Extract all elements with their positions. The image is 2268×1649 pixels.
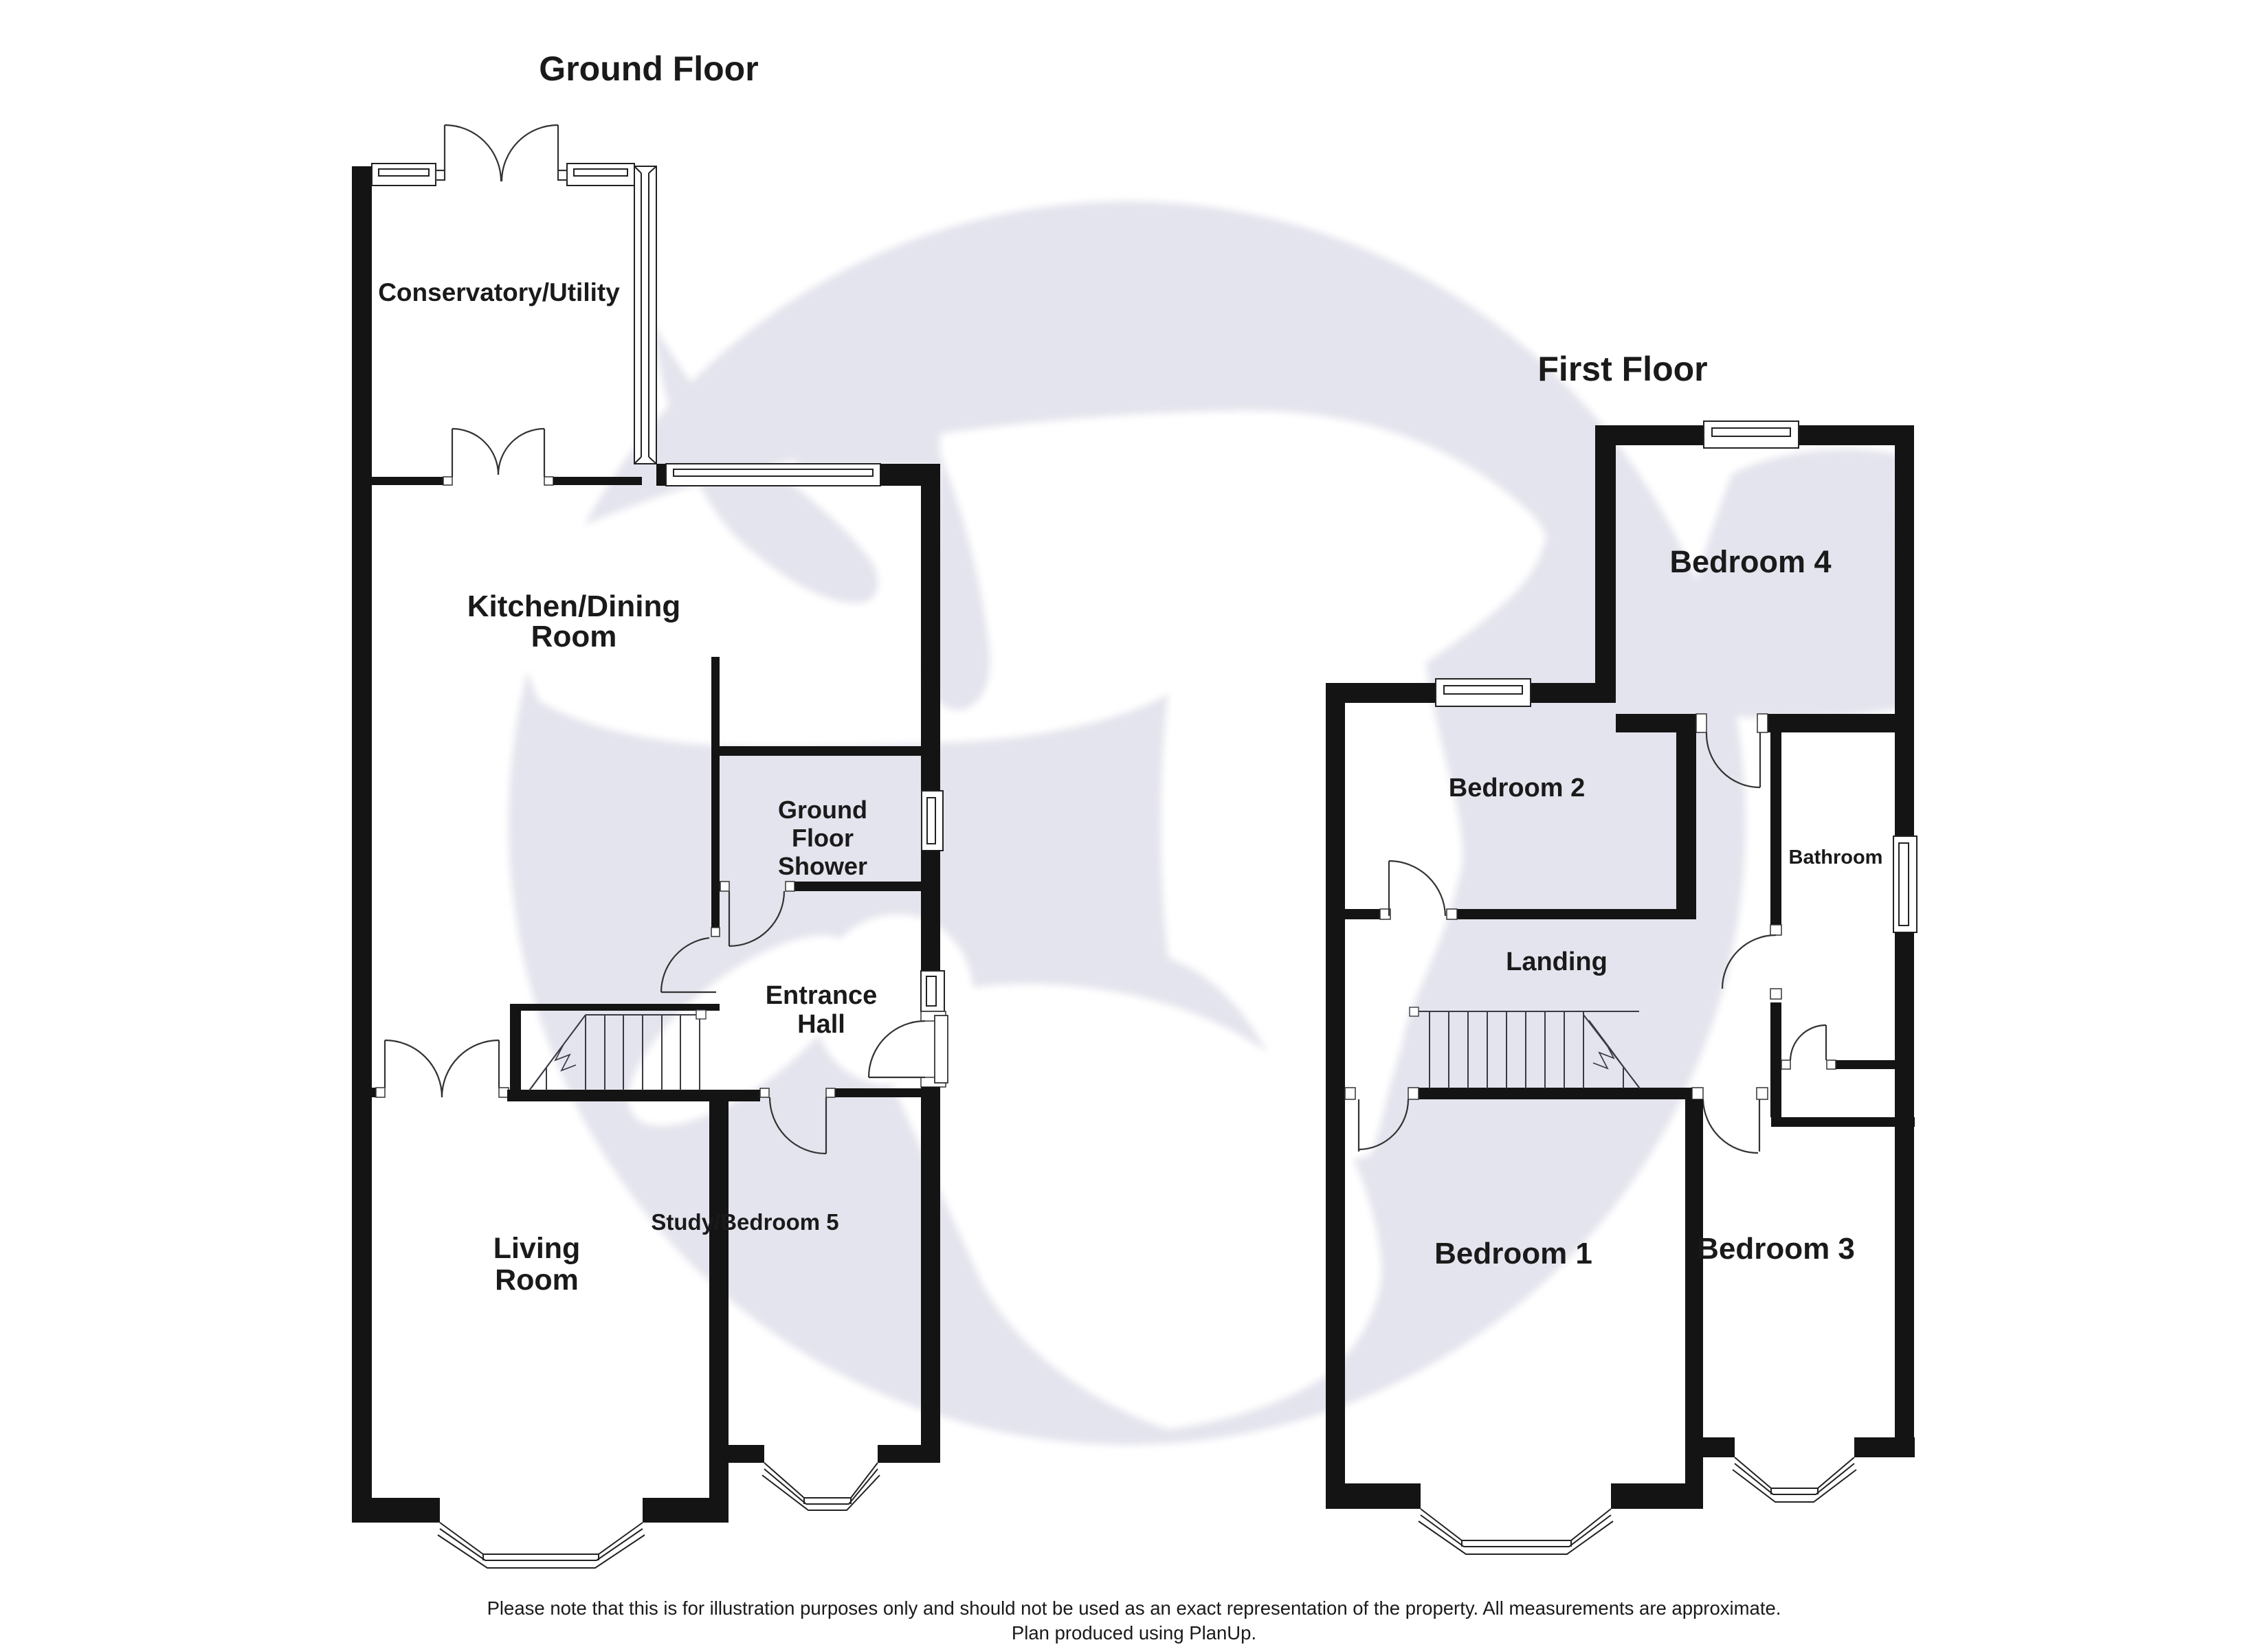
svg-text:Landing: Landing	[1506, 947, 1608, 976]
svg-text:Room: Room	[495, 1264, 579, 1297]
svg-text:Hall: Hall	[797, 1010, 845, 1039]
svg-text:Conservatory/Utility: Conservatory/Utility	[378, 278, 620, 306]
svg-text:Bedroom 4: Bedroom 4	[1669, 544, 1831, 579]
svg-text:Shower: Shower	[778, 852, 867, 880]
svg-text:Bathroom: Bathroom	[1789, 846, 1883, 868]
svg-text:Plan produced using PlanUp.: Plan produced using PlanUp.	[1012, 1622, 1256, 1644]
svg-text:Kitchen/Dining: Kitchen/Dining	[467, 590, 680, 623]
svg-text:Bedroom 3: Bedroom 3	[1697, 1232, 1855, 1266]
svg-text:Entrance: Entrance	[766, 981, 878, 1010]
svg-text:Ground Floor: Ground Floor	[539, 49, 758, 88]
svg-text:Floor: Floor	[792, 824, 854, 852]
svg-text:Living: Living	[493, 1232, 581, 1265]
svg-text:Bedroom 1: Bedroom 1	[1434, 1237, 1592, 1270]
svg-text:Bedroom 2: Bedroom 2	[1449, 774, 1585, 803]
svg-text:First Floor: First Floor	[1537, 350, 1707, 388]
svg-text:Room: Room	[531, 620, 617, 653]
svg-text:Please note that this is for i: Please note that this is for illustratio…	[487, 1597, 1781, 1619]
svg-text:Ground: Ground	[778, 796, 867, 824]
svg-text:Study/Bedroom 5: Study/Bedroom 5	[651, 1209, 838, 1235]
